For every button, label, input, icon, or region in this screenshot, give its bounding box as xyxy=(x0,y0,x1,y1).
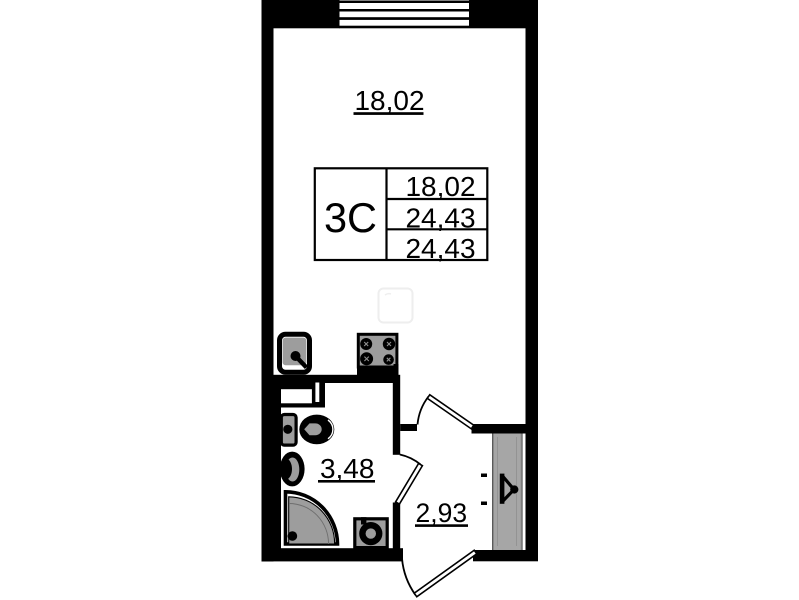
svg-text:18,02: 18,02 xyxy=(405,171,475,202)
svg-text:24,43: 24,43 xyxy=(405,203,475,234)
svg-text:2,93: 2,93 xyxy=(416,498,468,528)
svg-text:24,43: 24,43 xyxy=(405,233,475,264)
svg-text:3С: 3С xyxy=(324,194,377,241)
svg-text:18,02: 18,02 xyxy=(354,85,424,116)
svg-text:3,48: 3,48 xyxy=(320,453,375,484)
